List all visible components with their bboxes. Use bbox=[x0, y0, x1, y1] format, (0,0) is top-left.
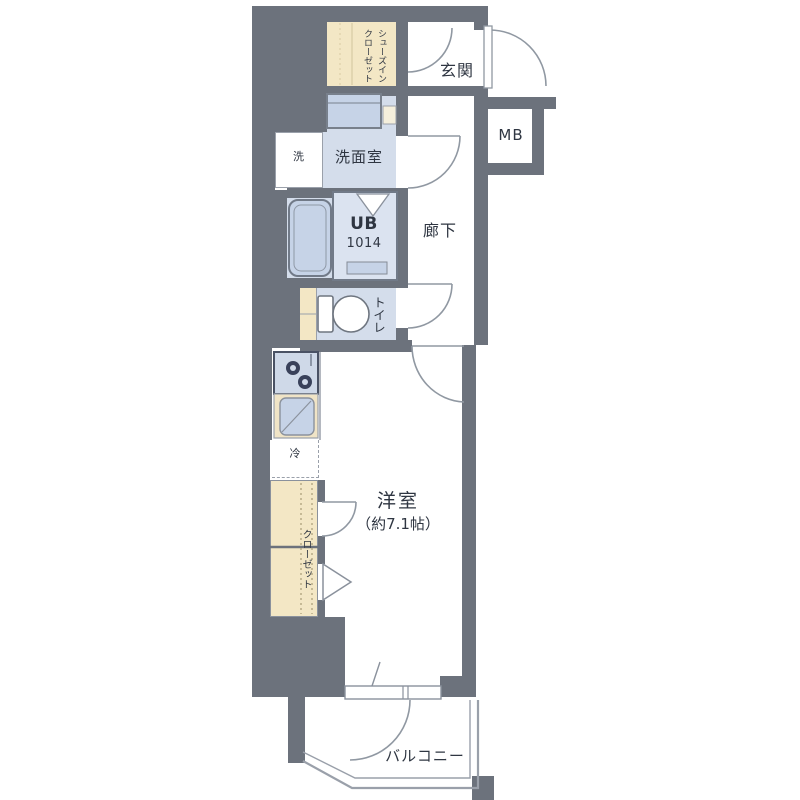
washroom-door-arc bbox=[408, 136, 460, 188]
fixtures-layer bbox=[0, 0, 800, 800]
balcony-window-slash bbox=[372, 662, 380, 686]
toilet-bowl bbox=[333, 296, 369, 332]
shoe-closet-label-col2: クローゼット bbox=[360, 26, 374, 86]
bath-step bbox=[347, 262, 387, 274]
hallway-label: 廊下 bbox=[410, 222, 470, 240]
closet-label: クローゼット bbox=[297, 503, 313, 615]
burner-1-inner bbox=[290, 365, 296, 371]
burner-2-inner bbox=[302, 379, 308, 385]
washer-spot-label: 洗 bbox=[275, 151, 323, 164]
western-room-size-label: （約7.1帖） bbox=[318, 516, 478, 533]
floorplan: シューズイン クローゼット 玄関 MB 洗 洗面室 UB 1014 トイレ 廊下… bbox=[0, 0, 800, 800]
balcony-window bbox=[345, 686, 441, 699]
toilet-door-arc bbox=[408, 284, 452, 328]
meter-box-label: MB bbox=[488, 127, 534, 144]
bathtub bbox=[289, 200, 331, 276]
western-room-label: 洋室 bbox=[318, 491, 478, 513]
balcony-label: バルコニー bbox=[355, 748, 495, 765]
toilet-label: トイレ bbox=[370, 287, 388, 343]
shoe-closet-label-col1: シューズイン bbox=[374, 26, 388, 86]
unit-bath-label: UB bbox=[333, 215, 395, 235]
closet-folding-door bbox=[323, 564, 351, 600]
toilet-tank bbox=[318, 296, 333, 332]
refrigerator-space-label: 冷 bbox=[272, 448, 319, 461]
front-door-arc bbox=[490, 30, 546, 86]
washing-machine bbox=[327, 94, 381, 128]
washroom-label: 洗面室 bbox=[321, 149, 397, 166]
washroom-side-box bbox=[383, 106, 396, 124]
unit-bath-size-label: 1014 bbox=[333, 237, 395, 252]
entrance-label: 玄関 bbox=[427, 62, 487, 80]
balcony-railing-inner bbox=[303, 700, 470, 778]
room-door-arc bbox=[412, 346, 464, 402]
